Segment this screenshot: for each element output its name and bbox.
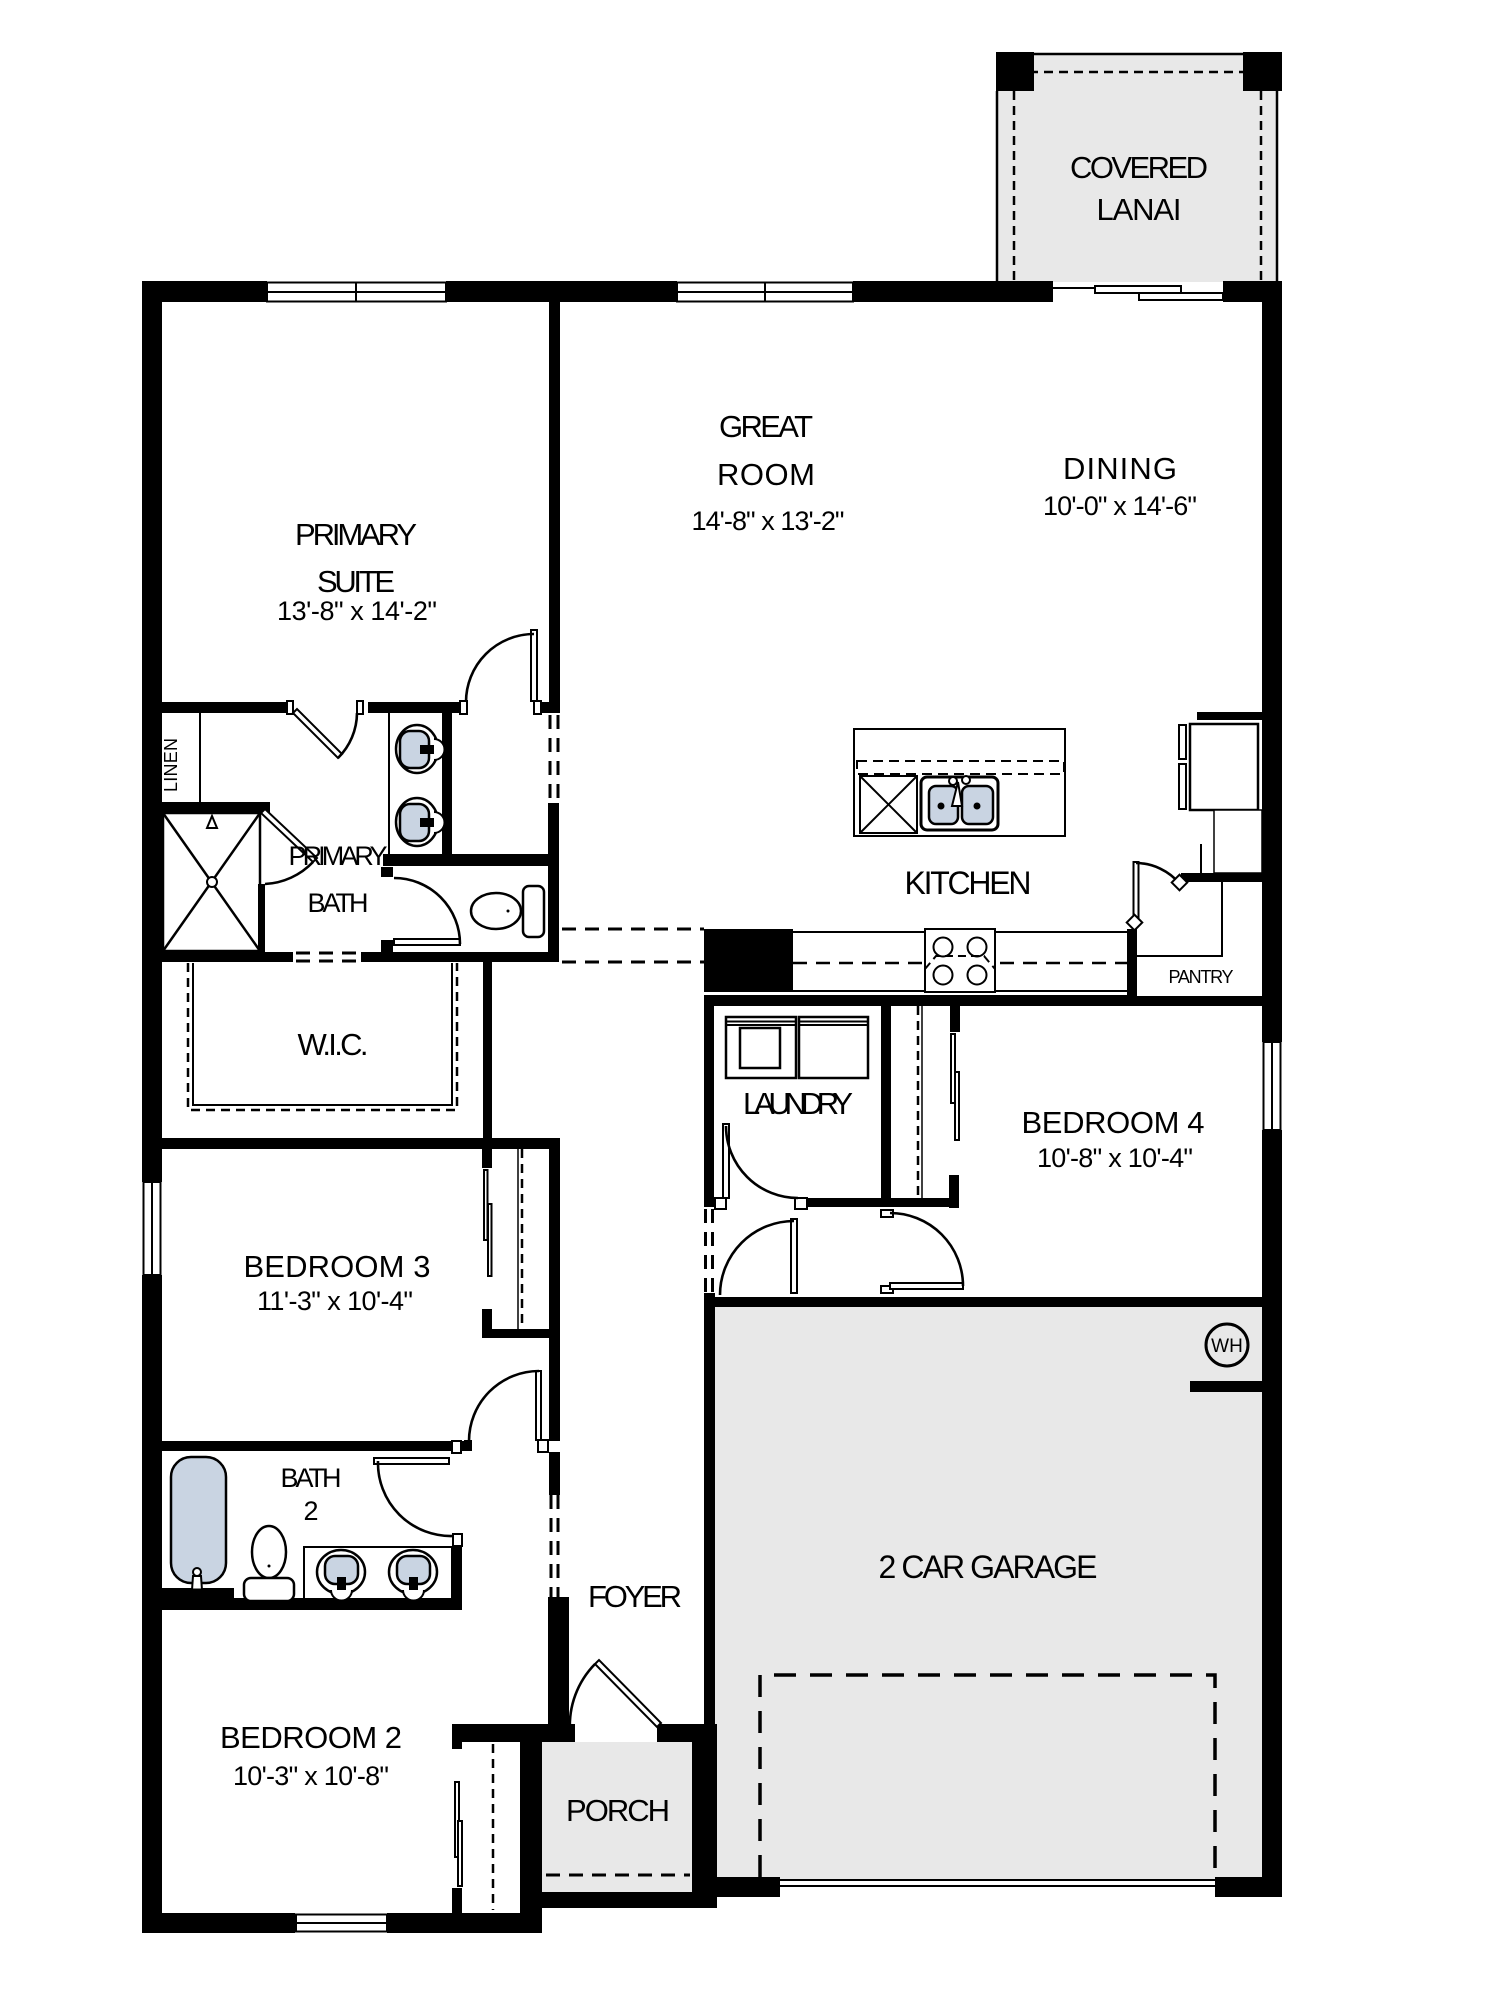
svg-text:GREAT: GREAT — [719, 409, 813, 444]
svg-text:PRIMARY: PRIMARY — [289, 841, 388, 871]
svg-text:PRIMARY: PRIMARY — [295, 517, 417, 552]
svg-text:BATH: BATH — [281, 1463, 342, 1493]
svg-text:10'-8" x 10'-4": 10'-8" x 10'-4" — [1037, 1143, 1193, 1173]
svg-text:BEDROOM 3: BEDROOM 3 — [244, 1249, 431, 1284]
svg-text:DINING: DINING — [1063, 451, 1177, 486]
svg-text:SUITE: SUITE — [317, 564, 395, 599]
svg-text:W.I.C.: W.I.C. — [298, 1027, 369, 1062]
svg-text:10'-3" x 10'-8": 10'-3" x 10'-8" — [233, 1761, 389, 1791]
svg-text:LANAI: LANAI — [1097, 192, 1182, 227]
svg-text:14'-8" x 13'-2": 14'-8" x 13'-2" — [692, 506, 845, 536]
svg-text:KITCHEN: KITCHEN — [905, 865, 1032, 901]
svg-text:BEDROOM 2: BEDROOM 2 — [220, 1720, 402, 1755]
svg-text:ROOM: ROOM — [717, 457, 815, 492]
svg-text:PANTRY: PANTRY — [1169, 967, 1234, 987]
svg-text:10'-0" x 14'-6": 10'-0" x 14'-6" — [1043, 491, 1197, 521]
svg-text:11'-3" x 10'-4": 11'-3" x 10'-4" — [257, 1286, 413, 1316]
svg-text:13'-8" x 14'-2": 13'-8" x 14'-2" — [277, 596, 437, 626]
svg-text:FOYER: FOYER — [588, 1579, 682, 1614]
svg-text:WH: WH — [1211, 1336, 1243, 1357]
svg-text:LAUNDRY: LAUNDRY — [743, 1086, 853, 1121]
svg-text:2 CAR GARAGE: 2 CAR GARAGE — [879, 1549, 1098, 1585]
svg-text:BEDROOM 4: BEDROOM 4 — [1022, 1105, 1205, 1140]
svg-text:BATH: BATH — [308, 888, 369, 918]
svg-text:2: 2 — [303, 1496, 318, 1526]
svg-text:PORCH: PORCH — [566, 1793, 670, 1828]
svg-text:LINEN: LINEN — [161, 738, 181, 792]
svg-text:COVERED: COVERED — [1070, 150, 1208, 185]
